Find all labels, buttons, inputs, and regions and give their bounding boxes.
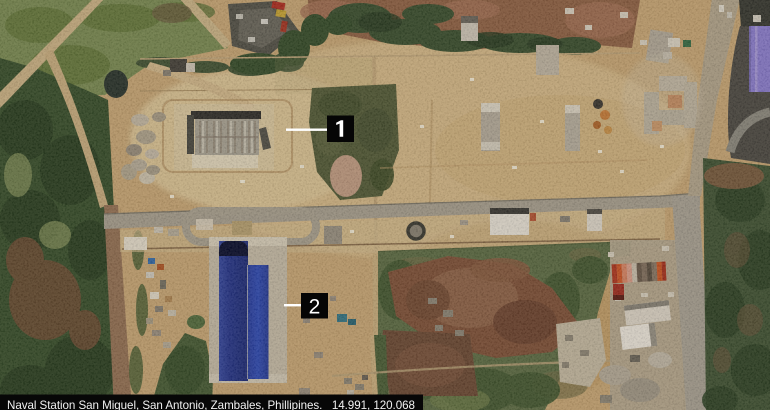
svg-text:Naval Station San Miguel, San: Naval Station San Miguel, San Antonio, Z… bbox=[7, 399, 415, 410]
svg-text:2: 2 bbox=[309, 296, 321, 319]
